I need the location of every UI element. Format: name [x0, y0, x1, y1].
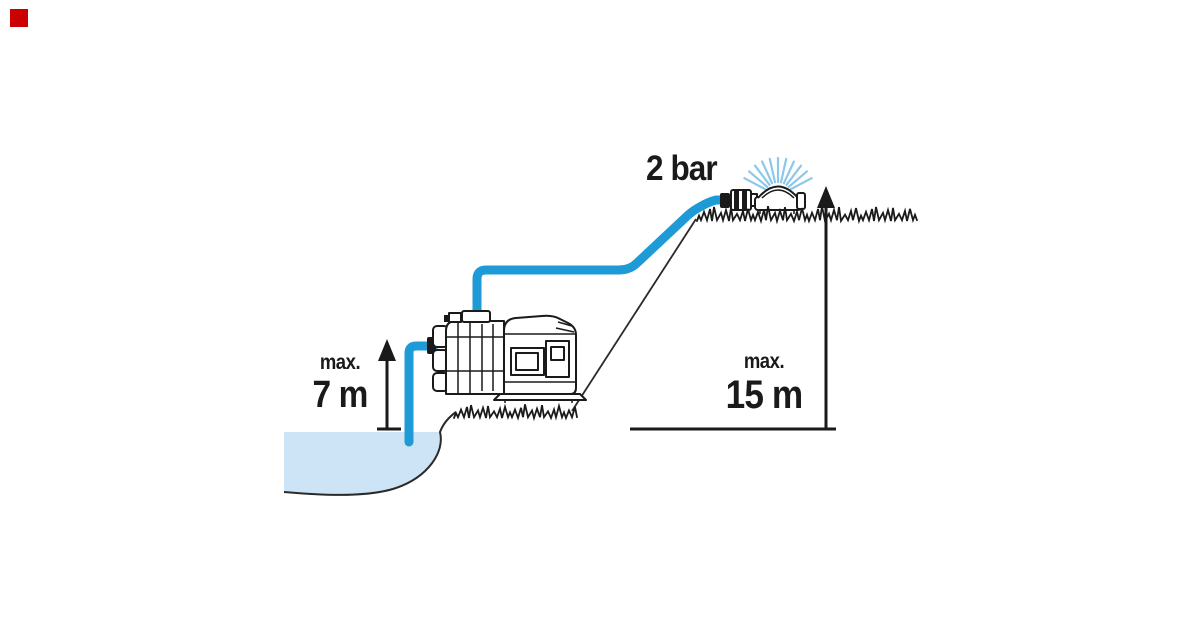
diagram-artwork [0, 0, 1200, 630]
water-fill [284, 432, 441, 495]
pump-motor-vent [551, 347, 564, 360]
suction-hose [409, 346, 434, 442]
suction-max-text: max. [305, 352, 375, 373]
delivery-value-text: 15 m [716, 375, 811, 415]
grass-lower [454, 404, 577, 418]
pressure-label: 2 bar [646, 151, 717, 186]
sprinkler-spray [744, 158, 811, 189]
grass-upper [697, 206, 917, 221]
delivery-max-text: max. [716, 351, 811, 372]
delivery-height-label: max. 15 m [716, 351, 811, 415]
sprinkler-connector-rib2 [742, 191, 747, 209]
sprinkler-connector-rib1 [734, 191, 739, 209]
suction-value-text: 7 m [305, 376, 375, 414]
suction-height-label: max. 7 m [305, 352, 375, 414]
sprinkler-body [755, 197, 801, 210]
pump-top-knob [449, 313, 461, 322]
suction-height-arrow [377, 339, 401, 429]
water-pond [284, 412, 456, 495]
diagram-canvas: 2 bar max. 7 m max. 15 m [0, 0, 1200, 630]
pump-illustration [427, 311, 586, 403]
pump-motor-window [516, 353, 538, 370]
delivery-hose [477, 200, 727, 318]
sprinkler-icon [720, 158, 812, 214]
pump-base-plate [494, 394, 586, 400]
sprinkler-end-cap [797, 193, 805, 209]
pump-top-cap [462, 311, 490, 322]
slope-line [572, 219, 696, 411]
pump-top-screw [444, 315, 450, 322]
pump-front-housing [446, 321, 504, 394]
sprinkler-connector-collar [720, 193, 730, 208]
